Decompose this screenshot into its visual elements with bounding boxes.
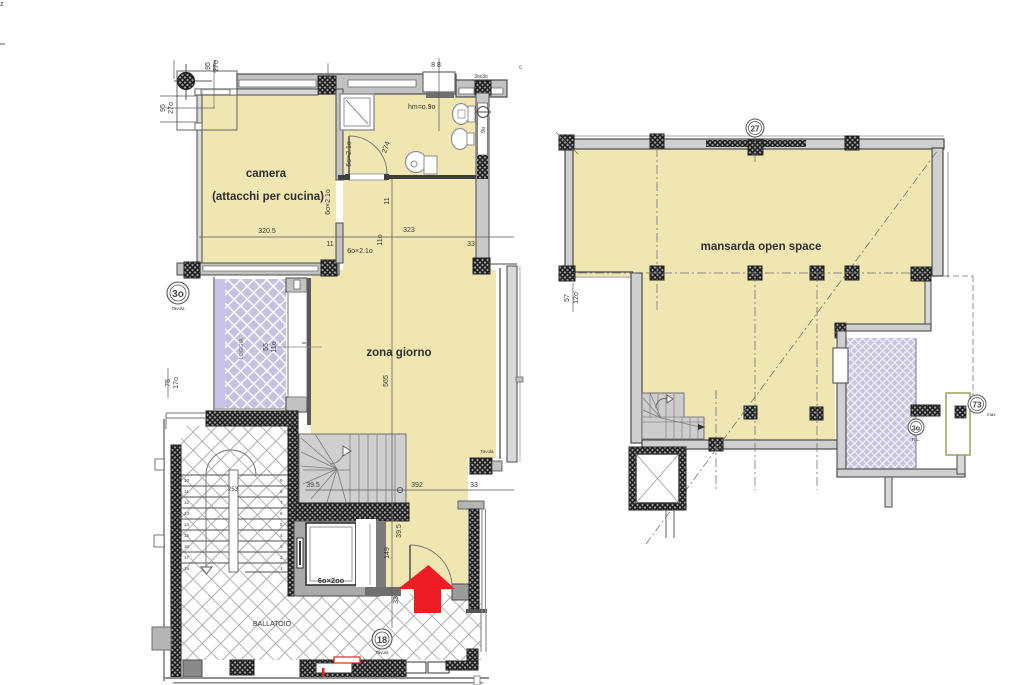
svg-text:3o: 3o xyxy=(172,289,184,300)
svg-text:1: 1 xyxy=(280,566,283,571)
svg-text:27o: 27o xyxy=(168,102,175,114)
svg-text:BALLATOIO: BALLATOIO xyxy=(253,621,292,628)
svg-text:14: 14 xyxy=(184,522,190,527)
svg-text:39.5: 39.5 xyxy=(306,482,320,489)
svg-text:33: 33 xyxy=(467,241,475,248)
svg-text:33: 33 xyxy=(393,596,400,604)
svg-text:320.5: 320.5 xyxy=(258,228,276,235)
svg-text:5: 5 xyxy=(280,522,283,527)
svg-text:3ox3o: 3ox3o xyxy=(474,74,488,80)
svg-text:73: 73 xyxy=(973,401,982,410)
svg-text:55: 55 xyxy=(263,343,270,351)
svg-text:6o×2.1o: 6o×2.1o xyxy=(325,189,332,215)
svg-text:LOGGIA: LOGGIA xyxy=(239,338,245,359)
svg-text:27o: 27o xyxy=(213,60,220,72)
svg-text:6o×2.1o: 6o×2.1o xyxy=(346,141,353,167)
svg-text:R.L.: R.L. xyxy=(912,437,920,442)
svg-text:6: 6 xyxy=(280,511,283,516)
svg-text:16: 16 xyxy=(184,544,190,549)
svg-text:11o: 11o xyxy=(377,234,384,245)
svg-text:6o×2oo: 6o×2oo xyxy=(318,576,345,585)
svg-text:10: 10 xyxy=(184,478,190,483)
svg-text:8: 8 xyxy=(280,489,283,494)
svg-text:392: 392 xyxy=(411,482,423,489)
svg-text:33: 33 xyxy=(470,482,478,489)
svg-text:11: 11 xyxy=(384,197,391,204)
svg-text:12: 12 xyxy=(184,500,190,505)
svg-text:9o: 9o xyxy=(481,127,487,133)
svg-text:18: 18 xyxy=(184,566,190,571)
svg-text:3: 3 xyxy=(280,544,283,549)
svg-text:6o×2.1o: 6o×2.1o xyxy=(347,248,373,255)
svg-text:95: 95 xyxy=(160,104,167,112)
svg-text:camera: camera xyxy=(246,168,287,180)
svg-text:(attacchi per cucina): (attacchi per cucina) xyxy=(212,191,324,203)
svg-text:z: z xyxy=(0,1,4,8)
svg-text:11: 11 xyxy=(326,241,333,248)
svg-text:4: 4 xyxy=(280,533,283,538)
svg-text:95: 95 xyxy=(205,62,212,70)
svg-text:hm=o.9o: hm=o.9o xyxy=(408,104,436,111)
svg-text:17: 17 xyxy=(184,555,190,560)
svg-text:253: 253 xyxy=(228,487,239,493)
svg-text:Tavola: Tavola xyxy=(171,306,185,311)
svg-text:9: 9 xyxy=(280,478,283,483)
svg-text:Tavola: Tavola xyxy=(480,449,494,454)
svg-text:149: 149 xyxy=(384,547,391,559)
svg-text:11o: 11o xyxy=(271,341,278,352)
svg-text:18: 18 xyxy=(377,635,387,645)
svg-text:39.5: 39.5 xyxy=(396,524,403,538)
svg-text:3o: 3o xyxy=(912,426,920,433)
svg-text:15: 15 xyxy=(184,533,190,538)
svg-text:2: 2 xyxy=(280,555,283,560)
svg-text:11: 11 xyxy=(184,489,189,494)
svg-text:27: 27 xyxy=(751,125,760,134)
svg-text:7: 7 xyxy=(280,500,283,505)
svg-text:zona giorno: zona giorno xyxy=(366,347,431,359)
svg-text:c: c xyxy=(519,65,522,71)
svg-text:17o: 17o xyxy=(173,377,180,389)
svg-text:max: max xyxy=(987,412,996,417)
svg-text:mansarda open space: mansarda open space xyxy=(701,241,822,253)
svg-text:565: 565 xyxy=(383,375,390,387)
svg-text:Tavola: Tavola xyxy=(375,650,389,655)
svg-text:12o: 12o xyxy=(573,292,580,304)
svg-text:13: 13 xyxy=(184,511,190,516)
svg-text:8 8: 8 8 xyxy=(431,62,441,69)
svg-text:75: 75 xyxy=(165,379,172,387)
svg-text:323: 323 xyxy=(403,227,415,234)
svg-text:57: 57 xyxy=(564,294,571,302)
